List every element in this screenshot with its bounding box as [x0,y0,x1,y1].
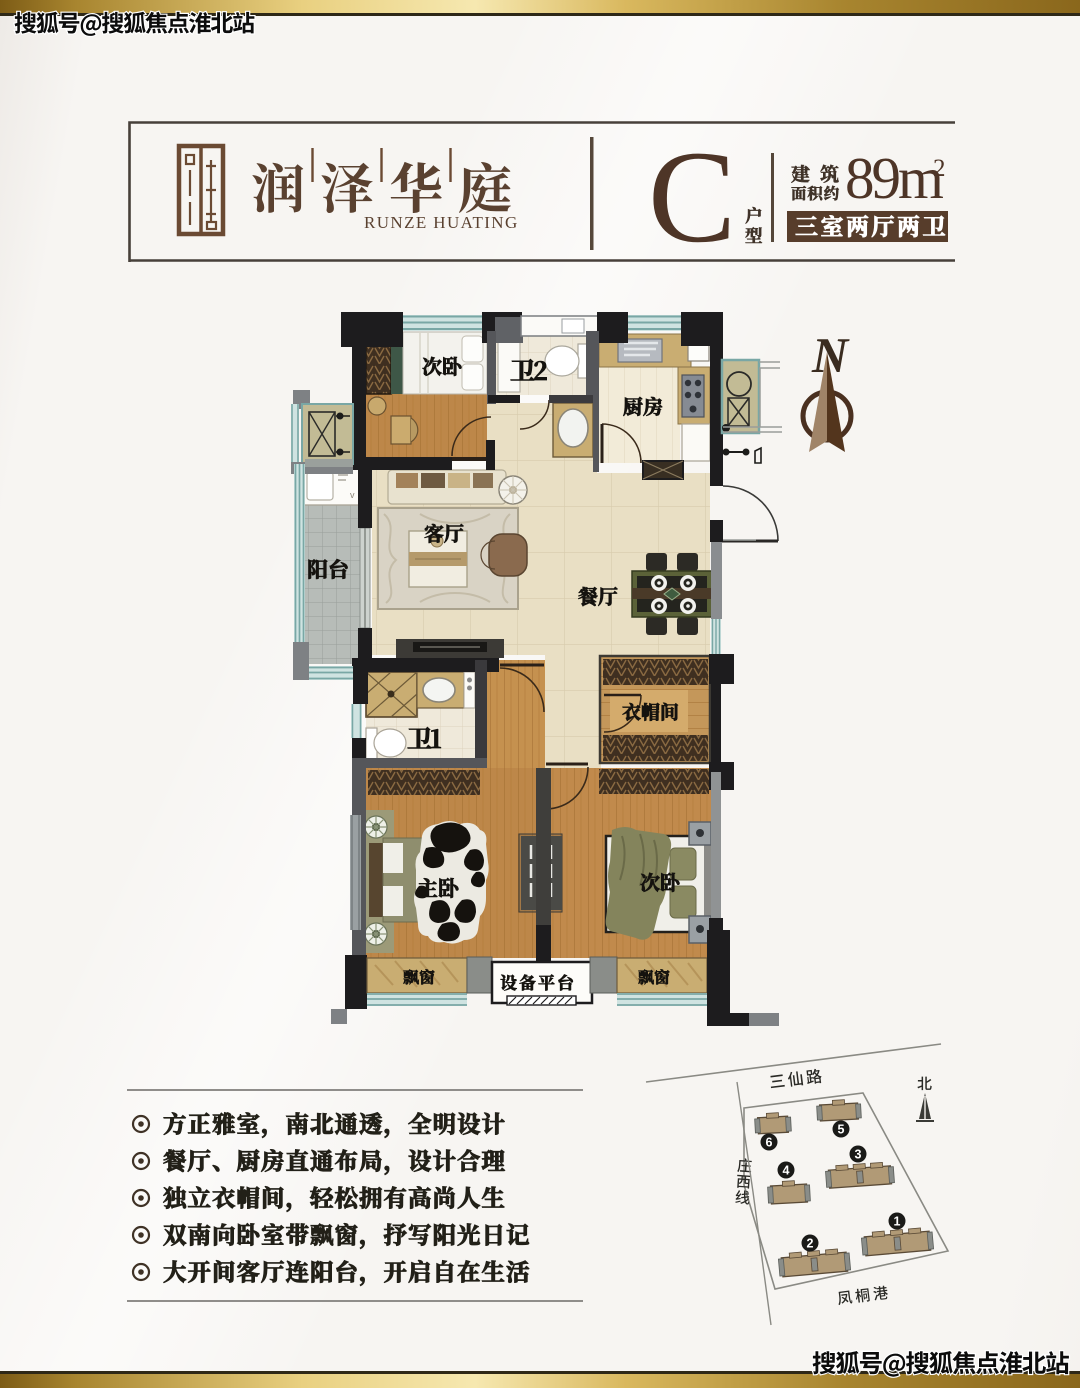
svg-text:v: v [350,490,355,500]
svg-text:2: 2 [807,1237,814,1251]
svg-text:6: 6 [766,1136,773,1150]
svg-text:C: C [648,123,736,270]
svg-text:89m: 89m [845,145,943,211]
svg-text:1: 1 [894,1215,901,1229]
svg-text:2: 2 [933,155,946,182]
svg-text:3: 3 [855,1148,862,1162]
svg-text:4: 4 [783,1164,790,1178]
svg-text:RUNZE HUATING: RUNZE HUATING [364,213,519,232]
svg-text:5: 5 [838,1123,845,1137]
